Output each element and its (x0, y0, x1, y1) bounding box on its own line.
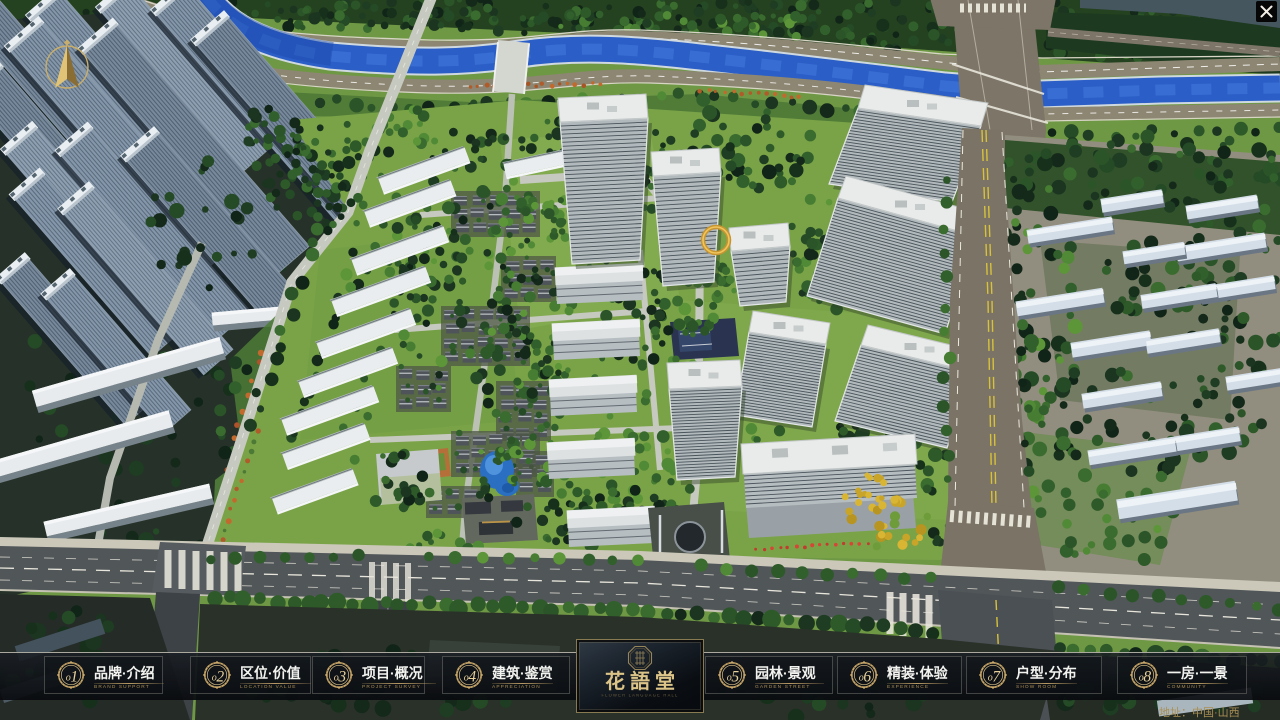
svg-text:7: 7 (992, 669, 1001, 686)
svg-text:3: 3 (337, 669, 346, 686)
svg-text:4: 4 (468, 669, 476, 686)
svg-text:8: 8 (1143, 669, 1151, 686)
svg-text:5: 5 (731, 669, 739, 686)
svg-text:6: 6 (863, 669, 871, 686)
svg-text:1: 1 (70, 669, 78, 686)
svg-text:2: 2 (216, 669, 224, 686)
